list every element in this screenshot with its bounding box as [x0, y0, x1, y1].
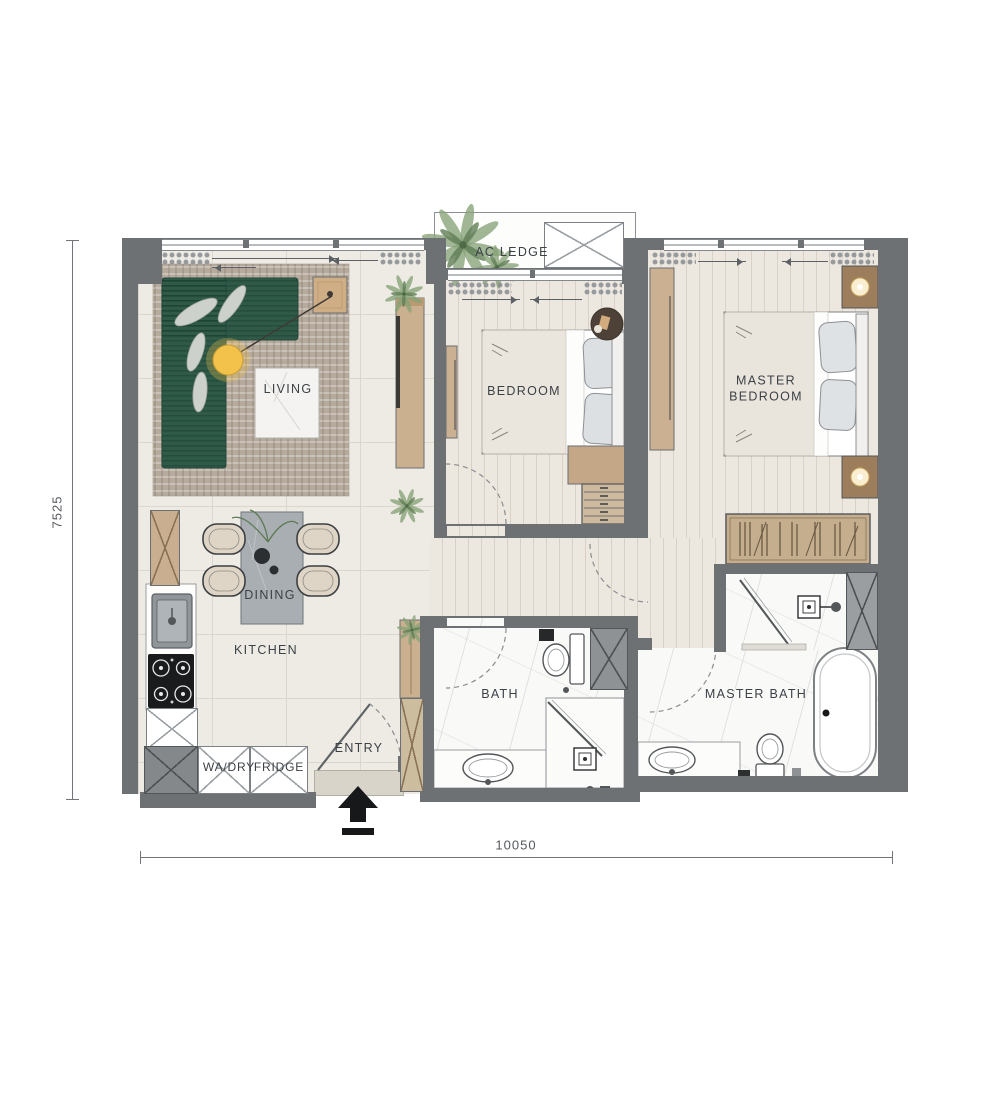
curtain-track-line: [782, 261, 828, 262]
curtain-track-line: [212, 267, 256, 268]
wall-segment: [420, 788, 640, 802]
kitchen-sink: [152, 594, 192, 648]
curtain-track-line: [698, 261, 746, 262]
curtain: [162, 252, 210, 266]
bath-door: [446, 628, 506, 688]
service-shaft: [846, 572, 878, 650]
master-nightstand: [842, 266, 878, 308]
bedroom-door: [446, 464, 506, 524]
master-vanity: [638, 742, 750, 778]
bathtub: [814, 648, 876, 778]
curtain-track-line: [212, 258, 338, 259]
window-mullion: [243, 240, 249, 248]
service-shaft: [590, 628, 628, 690]
tv-console: [396, 298, 424, 468]
entry-arrow: [338, 786, 378, 835]
wall-segment: [714, 564, 726, 652]
dining-chair: [203, 566, 245, 596]
curtain-track-line: [330, 260, 378, 261]
master-shower: [740, 578, 841, 650]
label-kitchen: KITCHEN: [234, 643, 298, 657]
label-living: LIVING: [264, 382, 313, 396]
curtain: [830, 252, 874, 266]
label-bedroom: BEDROOM: [487, 384, 561, 398]
master-nightstand: [842, 456, 878, 498]
bedroom-dresser: [568, 446, 626, 524]
door-opening: [447, 526, 505, 536]
curtain-track-line: [530, 299, 582, 300]
wall-segment: [590, 616, 638, 628]
wall-segment: [638, 638, 652, 650]
label-master-bath: MASTER BATH: [705, 687, 807, 701]
dining-table: [232, 510, 303, 624]
dimension-line-horizontal: [140, 857, 893, 858]
curtain: [652, 252, 696, 266]
window: [162, 239, 424, 251]
wall-segment: [624, 776, 908, 792]
dimension-tick: [892, 851, 893, 864]
master-toilet: [756, 734, 801, 777]
curtain: [448, 282, 512, 296]
window-mullion: [798, 240, 804, 248]
floor-plan: 7525 10050: [0, 0, 1000, 1100]
dining-chair: [203, 524, 245, 554]
bedroom-side-table: [591, 308, 623, 340]
master-bath-door: [650, 646, 716, 712]
master-bedroom-door: [590, 544, 648, 602]
curtain: [380, 252, 422, 266]
label-washer-dryer: WA/DRY: [203, 760, 255, 774]
window-mullion: [718, 240, 724, 248]
stove: [148, 654, 194, 708]
wall-segment: [434, 282, 446, 524]
window: [448, 269, 622, 281]
dining-chair: [297, 566, 339, 596]
dimension-label-vertical: 7525: [50, 496, 65, 529]
label-dining: DINING: [244, 588, 296, 602]
label-fridge: FRIDGE: [254, 760, 304, 774]
coffee-table: [255, 368, 319, 438]
kitchen-tall-cabinet: [150, 510, 180, 586]
window-mullion: [333, 240, 339, 248]
dimension-tick: [140, 851, 141, 864]
dimension-tick: [66, 799, 79, 800]
wall-segment: [624, 282, 648, 524]
dimension-line-vertical: [72, 240, 73, 800]
wall-segment: [878, 238, 908, 790]
door-opening: [447, 618, 504, 626]
bedroom-wardrobe: [446, 346, 457, 438]
kitchen-base-cabinet: [146, 708, 198, 750]
window: [664, 239, 864, 251]
curtain-track-line: [462, 299, 520, 300]
label-entry: ENTRY: [335, 741, 384, 755]
bath-toilet: [539, 629, 584, 693]
bookshelf: [726, 514, 870, 564]
master-wardrobe: [650, 268, 674, 450]
dimension-label-horizontal: 10050: [495, 838, 536, 853]
bath-vanity: [434, 750, 546, 788]
label-bath: BATH: [481, 687, 519, 701]
potted-plant: [384, 483, 430, 529]
entry-cabinet-base: [400, 698, 424, 792]
service-shaft: [144, 746, 198, 794]
curtain: [584, 282, 622, 296]
wall-segment: [140, 792, 316, 808]
dining-chair: [297, 524, 339, 554]
bath-shower: [546, 698, 624, 794]
dimension-tick: [66, 240, 79, 241]
ac-unit-box: [544, 222, 624, 268]
wall-segment: [122, 238, 138, 794]
label-master-bedroom: MASTER BEDROOM: [725, 373, 807, 404]
label-ac-ledge: AC LEDGE: [475, 245, 549, 259]
entry-door: [318, 704, 402, 770]
window-mullion: [530, 270, 535, 278]
